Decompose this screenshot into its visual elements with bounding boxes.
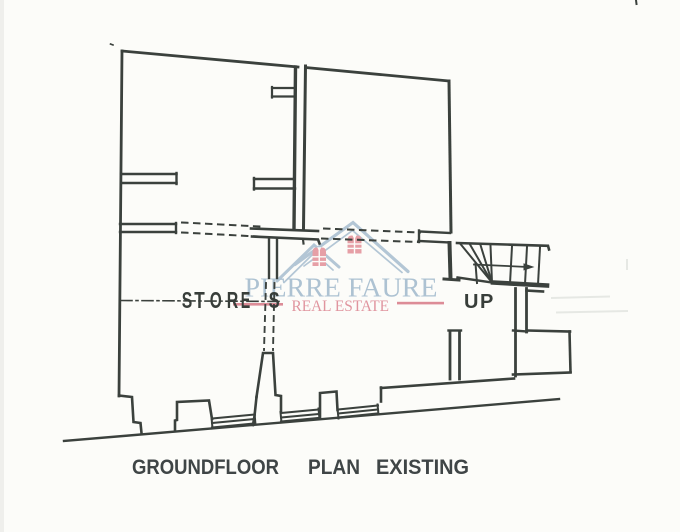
svg-text:PLAN: PLAN: [308, 455, 360, 479]
svg-text:E: E: [241, 287, 251, 313]
svg-text:O: O: [210, 287, 222, 313]
svg-text:T: T: [194, 287, 205, 313]
svg-text:GROUNDFLOOR: GROUNDFLOOR: [132, 455, 279, 479]
svg-text:REAL ESTATE: REAL ESTATE: [292, 298, 390, 315]
svg-text:S: S: [269, 287, 280, 313]
svg-text:S: S: [182, 287, 193, 313]
svg-text:EXISTING: EXISTING: [376, 455, 469, 479]
svg-text:R: R: [227, 287, 239, 313]
svg-text:UP: UP: [464, 291, 495, 313]
